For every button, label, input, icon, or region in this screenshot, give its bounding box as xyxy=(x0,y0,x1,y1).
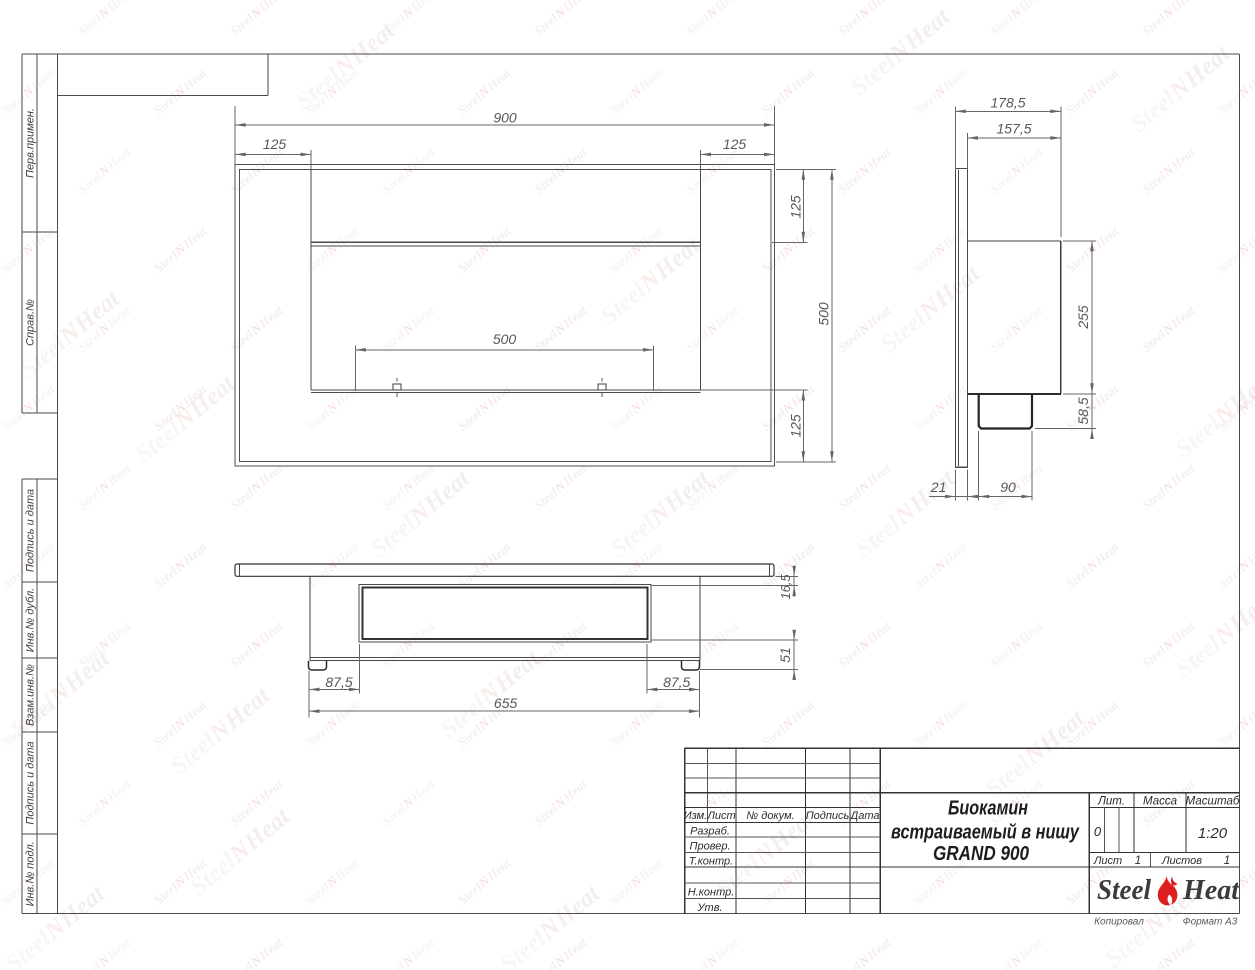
svg-text:157,5: 157,5 xyxy=(996,121,1031,137)
svg-text:SteelNHeat: SteelNHeat xyxy=(911,697,969,749)
svg-text:SteelNHeat: SteelNHeat xyxy=(987,302,1045,354)
svg-text:SteelNHeat: SteelNHeat xyxy=(227,618,285,670)
svg-text:SteelNHeat: SteelNHeat xyxy=(835,934,893,970)
svg-text:SteelNHeat: SteelNHeat xyxy=(1171,365,1255,464)
svg-text:SteelNHeat: SteelNHeat xyxy=(291,17,401,116)
svg-text:SteelNHeat: SteelNHeat xyxy=(531,0,589,39)
svg-text:SteelNHeat: SteelNHeat xyxy=(455,855,513,907)
svg-text:500: 500 xyxy=(816,302,832,326)
svg-text:SteelNHeat: SteelNHeat xyxy=(531,776,589,828)
svg-text:125: 125 xyxy=(788,414,804,438)
svg-text:SteelNHeat: SteelNHeat xyxy=(1139,302,1197,354)
svg-text:SteelNHeat: SteelNHeat xyxy=(987,0,1045,39)
svg-text:Инв.№ дубл.: Инв.№ дубл. xyxy=(25,588,37,653)
svg-text:SteelNHeat: SteelNHeat xyxy=(607,855,665,907)
svg-text:SteelNHeat: SteelNHeat xyxy=(227,934,285,970)
svg-text:SteelNHeat: SteelNHeat xyxy=(876,260,986,359)
svg-text:SteelNHeat: SteelNHeat xyxy=(1063,65,1121,117)
svg-text:SteelNHeat: SteelNHeat xyxy=(379,144,437,196)
svg-text:SteelNHeat: SteelNHeat xyxy=(1215,697,1255,749)
svg-text:SteelNHeat: SteelNHeat xyxy=(227,460,285,512)
svg-text:SteelNHeat: SteelNHeat xyxy=(303,223,361,275)
svg-text:Перв.примен.: Перв.примен. xyxy=(25,108,37,178)
svg-text:SteelNHeat: SteelNHeat xyxy=(683,0,741,39)
svg-text:SteelNHeat: SteelNHeat xyxy=(759,697,817,749)
svg-text:SteelNHeat: SteelNHeat xyxy=(987,618,1045,670)
svg-text:SteelNHeat: SteelNHeat xyxy=(835,144,893,196)
svg-text:SteelNHeat: SteelNHeat xyxy=(759,65,817,117)
svg-text:Heat: Heat xyxy=(1182,875,1240,906)
svg-text:Инв.№ подл.: Инв.№ подл. xyxy=(25,841,37,906)
svg-text:SteelNHeat: SteelNHeat xyxy=(531,302,589,354)
svg-text:SteelNHeat: SteelNHeat xyxy=(379,776,437,828)
svg-text:SteelNHeat: SteelNHeat xyxy=(227,0,285,39)
svg-text:Т.контр.: Т.контр. xyxy=(689,856,733,868)
svg-text:Копировал: Копировал xyxy=(1094,917,1144,928)
svg-text:SteelNHeat: SteelNHeat xyxy=(227,302,285,354)
svg-text:Провер.: Провер. xyxy=(690,841,731,853)
svg-text:SteelNHeat: SteelNHeat xyxy=(607,697,665,749)
svg-text:51: 51 xyxy=(777,647,793,663)
svg-text:Листов: Листов xyxy=(1161,855,1202,867)
svg-text:SteelNHeat: SteelNHeat xyxy=(683,934,741,970)
svg-text:Лист: Лист xyxy=(1093,855,1122,867)
svg-text:SteelNHeat: SteelNHeat xyxy=(1139,144,1197,196)
svg-text:SteelNHeat: SteelNHeat xyxy=(0,381,58,433)
svg-text:SteelNHeat: SteelNHeat xyxy=(835,618,893,670)
svg-text:Взам.инв.№: Взам.инв.№ xyxy=(25,664,37,726)
svg-text:SteelNHeat: SteelNHeat xyxy=(151,539,209,591)
svg-text:16,5: 16,5 xyxy=(778,574,793,600)
svg-text:SteelNHeat: SteelNHeat xyxy=(987,934,1045,970)
svg-text:125: 125 xyxy=(263,136,287,152)
svg-text:Изм.: Изм. xyxy=(684,810,707,822)
svg-text:GRAND 900: GRAND 900 xyxy=(933,843,1029,865)
svg-text:SteelNHeat: SteelNHeat xyxy=(455,223,513,275)
svg-text:SteelNHeat: SteelNHeat xyxy=(75,776,133,828)
svg-text:Подпись и дата: Подпись и дата xyxy=(25,741,37,824)
svg-text:SteelNHeat: SteelNHeat xyxy=(1139,460,1197,512)
svg-text:Дата: Дата xyxy=(848,810,879,822)
svg-text:87,5: 87,5 xyxy=(325,674,352,690)
svg-text:SteelNHeat: SteelNHeat xyxy=(911,539,969,591)
svg-text:255: 255 xyxy=(1075,305,1091,330)
svg-text:Подпись: Подпись xyxy=(806,810,850,822)
svg-text:SteelNHeat: SteelNHeat xyxy=(1063,539,1121,591)
svg-text:SteelNHeat: SteelNHeat xyxy=(607,65,665,117)
svg-text:Формат А3: Формат А3 xyxy=(1183,917,1238,928)
svg-text:Подпись и дата: Подпись и дата xyxy=(25,489,37,572)
svg-text:Лит.: Лит. xyxy=(1097,796,1125,808)
svg-text:Разраб.: Разраб. xyxy=(690,826,730,838)
svg-text:№ докум.: № докум. xyxy=(746,810,794,822)
svg-text:SteelNHeat: SteelNHeat xyxy=(531,460,589,512)
svg-text:Масса: Масса xyxy=(1143,796,1177,808)
svg-text:SteelNHeat: SteelNHeat xyxy=(1215,539,1255,591)
svg-text:SteelNHeat: SteelNHeat xyxy=(303,855,361,907)
svg-text:1: 1 xyxy=(1135,855,1141,867)
svg-text:Лист: Лист xyxy=(706,810,735,822)
svg-text:встраиваемый в нишу: встраиваемый в нишу xyxy=(891,822,1080,844)
svg-text:SteelNHeat: SteelNHeat xyxy=(759,223,817,275)
svg-text:900: 900 xyxy=(493,110,517,126)
svg-text:SteelNHeat: SteelNHeat xyxy=(131,370,241,469)
svg-text:1: 1 xyxy=(1224,855,1230,867)
svg-text:178,5: 178,5 xyxy=(990,95,1025,111)
svg-text:SteelNHeat: SteelNHeat xyxy=(455,381,513,433)
svg-text:SteelNHeat: SteelNHeat xyxy=(683,144,741,196)
svg-text:Steel: Steel xyxy=(1097,875,1151,906)
svg-text:SteelNHeat: SteelNHeat xyxy=(1215,223,1255,275)
svg-text:SteelNHeat: SteelNHeat xyxy=(303,381,361,433)
svg-text:Н.контр.: Н.контр. xyxy=(688,887,735,899)
svg-text:0: 0 xyxy=(1094,824,1102,839)
svg-text:87,5: 87,5 xyxy=(663,674,690,690)
svg-text:SteelNHeat: SteelNHeat xyxy=(436,645,546,744)
svg-text:SteelNHeat: SteelNHeat xyxy=(0,223,58,275)
svg-text:655: 655 xyxy=(494,695,518,711)
svg-text:SteelNHeat: SteelNHeat xyxy=(835,460,893,512)
svg-text:SteelNHeat: SteelNHeat xyxy=(496,880,606,970)
svg-text:21: 21 xyxy=(930,479,947,495)
svg-text:SteelNHeat: SteelNHeat xyxy=(75,460,133,512)
svg-text:SteelNHeat: SteelNHeat xyxy=(151,65,209,117)
svg-text:58,5: 58,5 xyxy=(1075,397,1091,424)
svg-text:SteelNHeat: SteelNHeat xyxy=(379,618,437,670)
svg-text:SteelNHeat: SteelNHeat xyxy=(455,539,513,591)
svg-text:SteelNHeat: SteelNHeat xyxy=(1139,0,1197,39)
svg-text:125: 125 xyxy=(788,195,804,219)
svg-text:1:20: 1:20 xyxy=(1198,825,1228,842)
svg-text:125: 125 xyxy=(723,136,747,152)
svg-text:SteelNHeat: SteelNHeat xyxy=(911,65,969,117)
svg-text:SteelNHeat: SteelNHeat xyxy=(987,144,1045,196)
svg-text:SteelNHeat: SteelNHeat xyxy=(683,618,741,670)
svg-text:SteelNHeat: SteelNHeat xyxy=(151,223,209,275)
svg-text:SteelNHeat: SteelNHeat xyxy=(607,381,665,433)
svg-text:SteelNHeat: SteelNHeat xyxy=(227,144,285,196)
svg-text:SteelNHeat: SteelNHeat xyxy=(379,302,437,354)
svg-text:SteelNHeat: SteelNHeat xyxy=(379,934,437,970)
svg-text:SteelNHeat: SteelNHeat xyxy=(835,0,893,39)
svg-text:SteelNHeat: SteelNHeat xyxy=(75,0,133,39)
svg-text:Масштаб: Масштаб xyxy=(1186,796,1240,808)
svg-text:Утв.: Утв. xyxy=(697,902,723,914)
svg-text:SteelNHeat: SteelNHeat xyxy=(1215,65,1255,117)
svg-text:SteelNHeat: SteelNHeat xyxy=(303,539,361,591)
svg-text:SteelNHeat: SteelNHeat xyxy=(911,381,969,433)
svg-text:Справ.№: Справ.№ xyxy=(25,299,37,346)
svg-text:Биокамин: Биокамин xyxy=(948,798,1028,820)
svg-text:SteelNHeat: SteelNHeat xyxy=(531,144,589,196)
svg-text:SteelNHeat: SteelNHeat xyxy=(303,697,361,749)
svg-text:90: 90 xyxy=(1000,479,1016,495)
svg-text:SteelNHeat: SteelNHeat xyxy=(683,302,741,354)
svg-text:SteelNHeat: SteelNHeat xyxy=(75,144,133,196)
svg-text:SteelNHeat: SteelNHeat xyxy=(75,934,133,970)
svg-text:500: 500 xyxy=(493,331,517,347)
svg-text:SteelNHeat: SteelNHeat xyxy=(987,460,1045,512)
